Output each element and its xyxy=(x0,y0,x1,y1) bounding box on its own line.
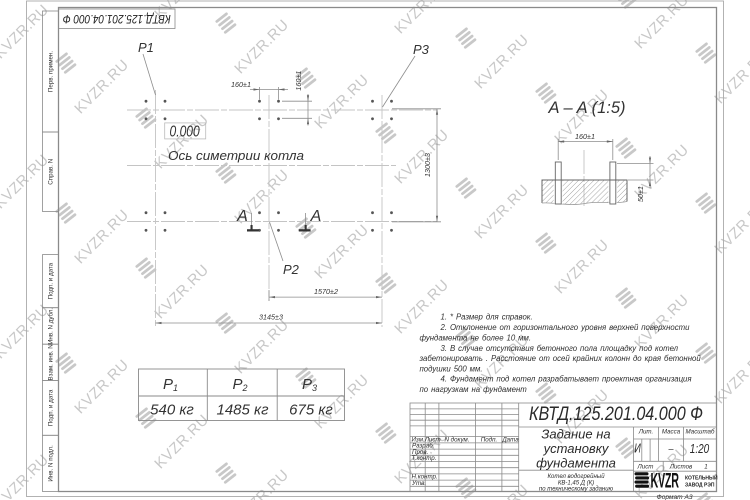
svg-text:Взам. инв. N: Взам. инв. N xyxy=(48,344,55,380)
svg-text:по техническому заданию: по техническому заданию xyxy=(539,486,614,492)
svg-text:Котел водогрейный: Котел водогрейный xyxy=(547,473,605,480)
svg-text:установку: установку xyxy=(543,441,610,456)
svg-text:3. В случае отсутствия бетонно: 3. В случае отсутствия бетонного пола пл… xyxy=(441,344,679,353)
svg-text:KVZR.RU: KVZR.RU xyxy=(231,16,292,77)
svg-text:KVZR.RU: KVZR.RU xyxy=(151,261,212,322)
svg-text:1:20: 1:20 xyxy=(690,443,710,456)
svg-text:675 кг: 675 кг xyxy=(289,402,333,419)
svg-text:KVZR.RU: KVZR.RU xyxy=(471,181,532,242)
svg-text:KVZR.RU: KVZR.RU xyxy=(71,206,132,267)
svg-text:Подп.: Подп. xyxy=(481,436,497,443)
svg-text:Утв.: Утв. xyxy=(411,480,426,487)
svg-text:160±1: 160±1 xyxy=(294,71,303,91)
svg-text:KVZR.RU: KVZR.RU xyxy=(231,316,292,377)
svg-text:P2: P2 xyxy=(232,376,247,393)
svg-text:KVZR.RU: KVZR.RU xyxy=(551,236,612,297)
svg-text:Справ. N: Справ. N xyxy=(48,159,55,185)
svg-text:50±1: 50±1 xyxy=(636,186,645,202)
svg-text:Формат А3: Формат А3 xyxy=(656,494,692,500)
svg-text:A: A xyxy=(310,208,322,225)
svg-text:KVZR.RU: KVZR.RU xyxy=(151,111,212,172)
svg-text:Инв. N дубл.: Инв. N дубл. xyxy=(48,308,55,344)
svg-text:KVZR.RU: KVZR.RU xyxy=(311,221,372,282)
svg-text:–: – xyxy=(667,444,674,454)
svg-text:И: И xyxy=(634,442,641,456)
svg-text:Масса: Масса xyxy=(662,429,681,436)
svg-text:4. Фундамент под котел разраба: 4. Фундамент под котел разрабатывает про… xyxy=(441,375,693,384)
svg-text:Масштаб: Масштаб xyxy=(686,429,715,436)
svg-text:N докум.: N докум. xyxy=(444,436,469,443)
svg-text:Задание на: Задание на xyxy=(541,427,610,442)
svg-text:Т.контр.: Т.контр. xyxy=(412,455,437,462)
svg-text:KVZR.RU: KVZR.RU xyxy=(231,466,292,500)
svg-text:1300±3: 1300±3 xyxy=(423,153,432,177)
svg-text:Инв. N подл.: Инв. N подл. xyxy=(48,445,55,482)
svg-text:160±1: 160±1 xyxy=(575,132,595,141)
svg-text:Подп. и дата: Подп. и дата xyxy=(48,389,55,426)
svg-text:0.000: 0.000 xyxy=(170,122,200,140)
svg-text:540 кг: 540 кг xyxy=(150,402,194,419)
svg-text:забетонировать . Расстояние от: забетонировать . Расстояние от осей край… xyxy=(419,354,702,363)
svg-text:КВТД.125.201.04.000 Ф: КВТД.125.201.04.000 Ф xyxy=(63,12,171,24)
svg-text:P1: P1 xyxy=(163,376,178,393)
svg-text:Перв. примен.: Перв. примен. xyxy=(48,51,55,92)
svg-text:160±1: 160±1 xyxy=(231,80,251,89)
svg-text:1: 1 xyxy=(704,464,707,471)
svg-text:KVZR.RU: KVZR.RU xyxy=(71,356,132,417)
svg-text:KVZR.RU: KVZR.RU xyxy=(391,126,452,187)
svg-text:фундамента не более 10 мм.: фундамента не более 10 мм. xyxy=(420,334,532,343)
svg-text:P3: P3 xyxy=(413,42,430,57)
svg-text:2. Отклонение от горизонтально: 2. Отклонение от горизонтального уровня … xyxy=(440,323,691,332)
svg-text:КВТД.125.201.04.000 Ф: КВТД.125.201.04.000 Ф xyxy=(529,404,703,425)
svg-text:1. * Размер для справок.: 1. * Размер для справок. xyxy=(441,313,533,322)
svg-text:ЗАВОД РЭП: ЗАВОД РЭП xyxy=(685,482,715,488)
svg-text:Дата: Дата xyxy=(501,436,519,443)
svg-text:KVZR: KVZR xyxy=(651,469,679,493)
svg-text:Ось симетрии котла: Ось симетрии котла xyxy=(168,148,304,163)
svg-text:КОТЕЛЬНЫЙ: КОТЕЛЬНЫЙ xyxy=(685,474,718,482)
svg-text:KVZR.RU: KVZR.RU xyxy=(471,31,532,92)
svg-text:KVZR.RU: KVZR.RU xyxy=(71,56,132,117)
svg-text:A: A xyxy=(236,208,248,225)
svg-text:A – A (1:5): A – A (1:5) xyxy=(547,99,625,117)
svg-text:подушки 500 мм.: подушки 500 мм. xyxy=(420,364,483,373)
svg-text:Подп. и дата: Подп. и дата xyxy=(48,262,55,299)
svg-text:KVZR.RU: KVZR.RU xyxy=(391,0,452,37)
svg-text:P1: P1 xyxy=(138,40,154,55)
svg-text:по нагрузкам на фундамент: по нагрузкам на фундамент xyxy=(420,385,528,394)
svg-text:3145±3: 3145±3 xyxy=(259,313,283,322)
svg-text:фундамента: фундамента xyxy=(536,456,616,471)
svg-text:KVZR.RU: KVZR.RU xyxy=(311,71,372,132)
svg-text:P2: P2 xyxy=(283,262,300,277)
svg-text:1570±2: 1570±2 xyxy=(314,287,338,296)
svg-text:1485 кг: 1485 кг xyxy=(216,402,269,419)
svg-text:Лит.: Лит. xyxy=(638,429,654,436)
